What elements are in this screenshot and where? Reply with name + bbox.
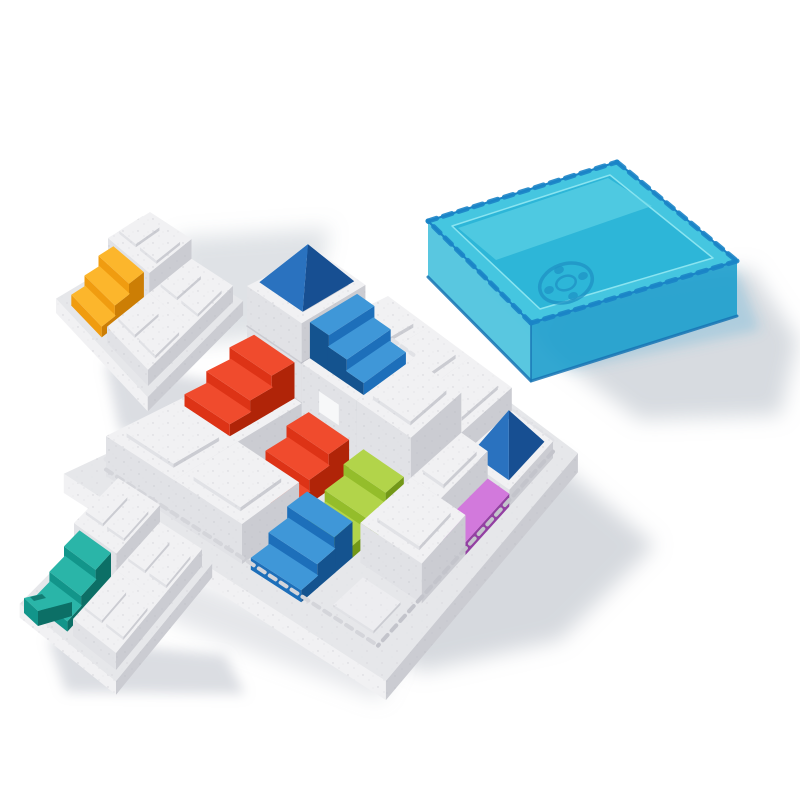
puzzle-game-photo [0,0,800,799]
scene-root [20,162,798,700]
product-photo [0,0,800,799]
